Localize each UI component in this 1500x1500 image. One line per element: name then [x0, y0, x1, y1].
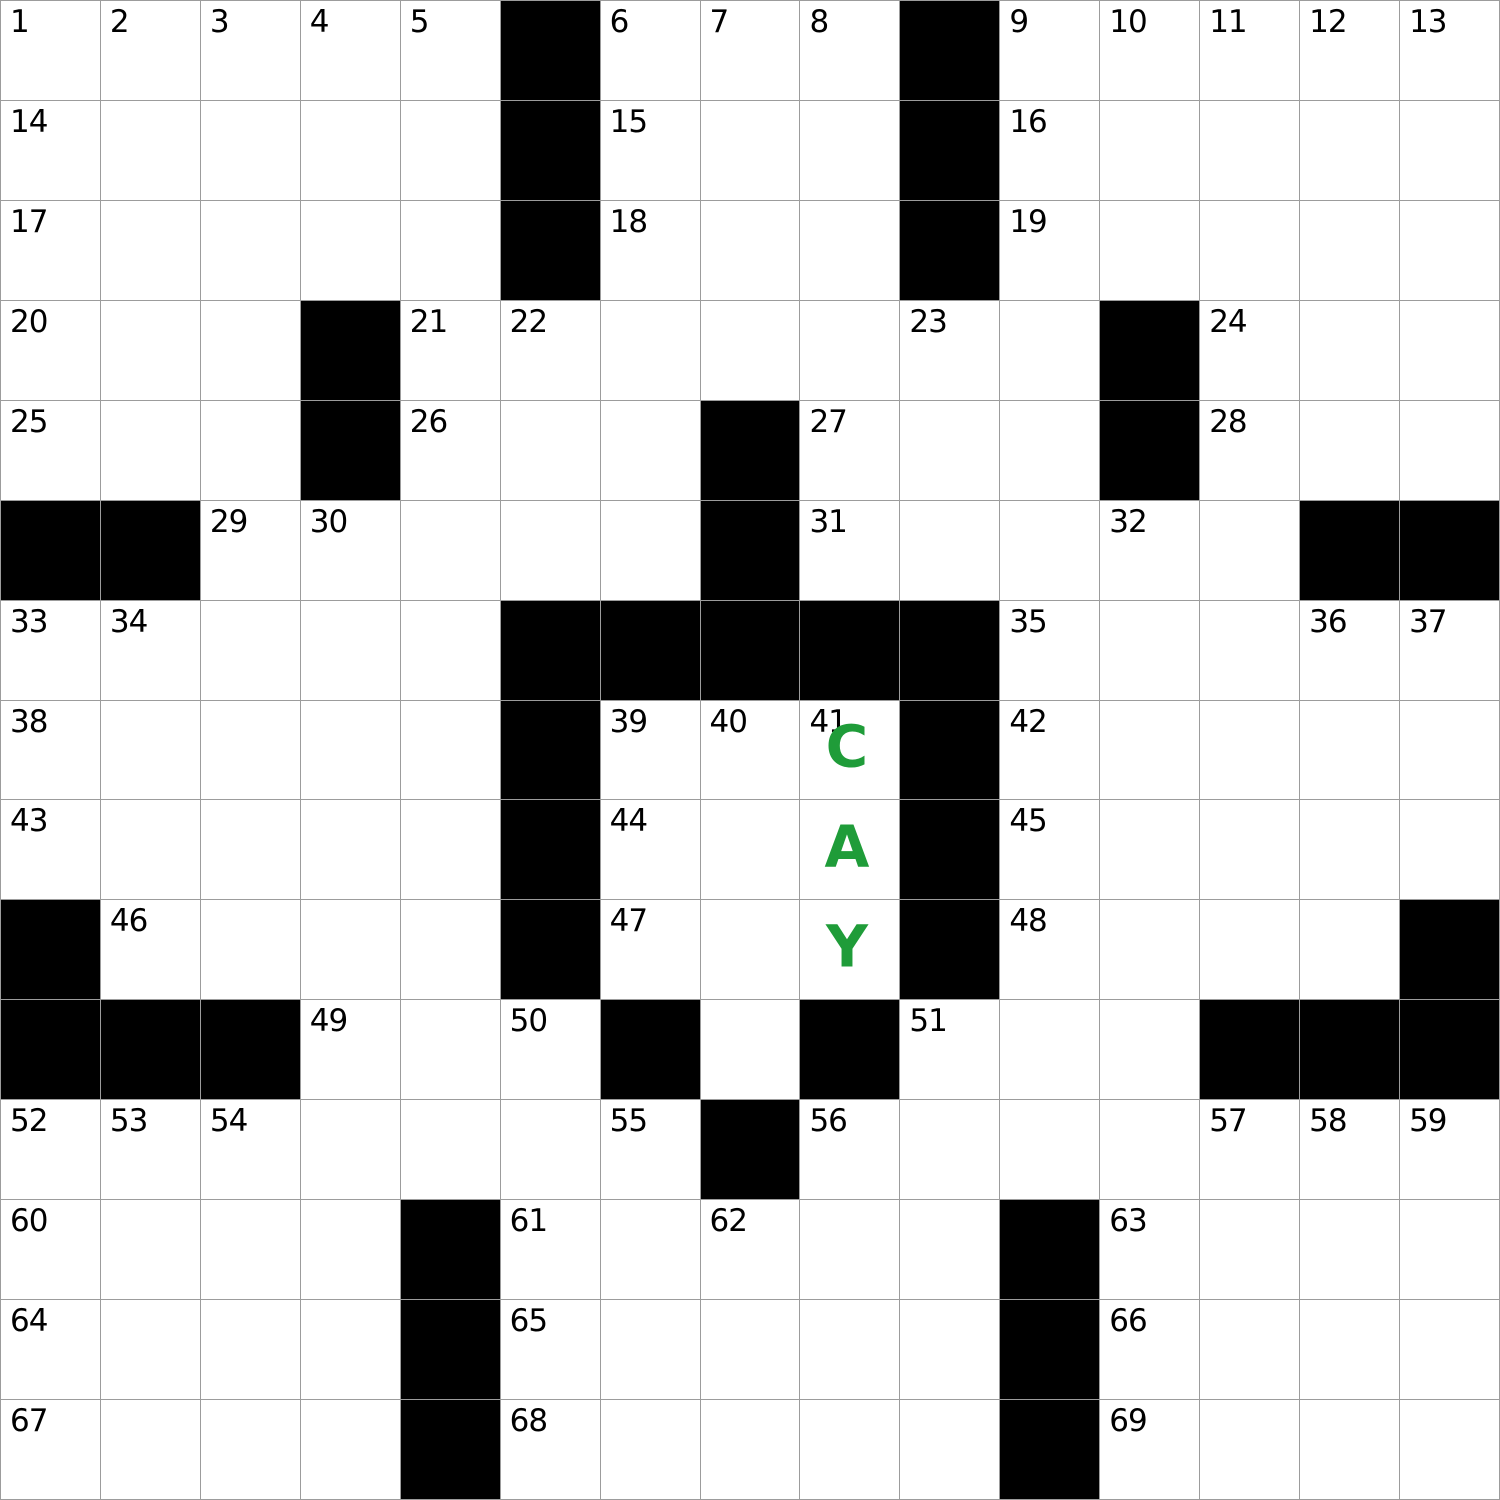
- cell-r14c0[interactable]: 67: [1, 1400, 101, 1500]
- clue-number: 32: [1109, 506, 1146, 539]
- cell-r4c1[interactable]: [101, 401, 201, 501]
- cell-r9c6[interactable]: 47: [601, 900, 701, 1000]
- cell-r8c10[interactable]: 45: [1000, 800, 1100, 900]
- cell-r11c11[interactable]: [1100, 1100, 1200, 1200]
- clue-number: 47: [610, 905, 647, 938]
- clue-number: 49: [310, 1005, 347, 1038]
- clue-number: 68: [510, 1405, 547, 1438]
- black-cell-r10c0: [1, 1000, 101, 1100]
- cell-r0c6[interactable]: 6: [601, 1, 701, 101]
- clue-number: 33: [10, 606, 47, 639]
- cell-r9c2[interactable]: [201, 900, 301, 1000]
- cell-r3c7[interactable]: [701, 301, 801, 401]
- cell-r2c1[interactable]: [101, 201, 201, 301]
- clue-number: 48: [1009, 905, 1046, 938]
- cell-r5c4[interactable]: [401, 501, 501, 601]
- cell-r2c6[interactable]: 18: [601, 201, 701, 301]
- cell-r6c4[interactable]: [401, 601, 501, 701]
- cell-r3c14[interactable]: [1400, 301, 1500, 401]
- cell-r5c11[interactable]: 32: [1100, 501, 1200, 601]
- cell-r1c0[interactable]: 14: [1, 101, 101, 201]
- clue-number: 62: [710, 1205, 747, 1238]
- cell-r13c7[interactable]: [701, 1300, 801, 1400]
- black-cell-r13c10: [1000, 1300, 1100, 1400]
- cell-r10c9[interactable]: 51: [900, 1000, 1000, 1100]
- clue-number: 34: [110, 606, 147, 639]
- black-cell-r10c6: [601, 1000, 701, 1100]
- cell-r12c7[interactable]: 62: [701, 1200, 801, 1300]
- cell-r7c2[interactable]: [201, 701, 301, 801]
- clue-number: 1: [10, 6, 29, 39]
- black-cell-r4c7: [701, 401, 801, 501]
- black-cell-r2c5: [501, 201, 601, 301]
- black-cell-r6c9: [900, 601, 1000, 701]
- cell-r10c7[interactable]: [701, 1000, 801, 1100]
- cell-r12c14[interactable]: [1400, 1200, 1500, 1300]
- cell-r12c8[interactable]: [800, 1200, 900, 1300]
- clue-number: 6: [610, 6, 629, 39]
- clue-number: 59: [1409, 1105, 1446, 1138]
- cell-r7c1[interactable]: [101, 701, 201, 801]
- black-cell-r10c1: [101, 1000, 201, 1100]
- cell-r4c0[interactable]: 25: [1, 401, 101, 501]
- black-cell-r6c6: [601, 601, 701, 701]
- cell-r7c12[interactable]: [1200, 701, 1300, 801]
- clue-number: 3: [210, 6, 229, 39]
- clue-number: 61: [510, 1205, 547, 1238]
- clue-number: 10: [1109, 6, 1146, 39]
- cell-r14c2[interactable]: [201, 1400, 301, 1500]
- clue-number: 15: [610, 106, 647, 139]
- cell-r2c8[interactable]: [800, 201, 900, 301]
- cell-r4c4[interactable]: 26: [401, 401, 501, 501]
- cell-r7c7[interactable]: 40: [701, 701, 801, 801]
- cell-r3c1[interactable]: [101, 301, 201, 401]
- cell-r10c5[interactable]: 50: [501, 1000, 601, 1100]
- cell-r13c8[interactable]: [800, 1300, 900, 1400]
- cell-r11c1[interactable]: 53: [101, 1100, 201, 1200]
- cell-r0c7[interactable]: 7: [701, 1, 801, 101]
- cell-r6c3[interactable]: [301, 601, 401, 701]
- cell-r8c1[interactable]: [101, 800, 201, 900]
- clue-number: 37: [1409, 606, 1446, 639]
- clue-number: 43: [10, 805, 47, 838]
- cell-r3c13[interactable]: [1300, 301, 1400, 401]
- cell-r8c2[interactable]: [201, 800, 301, 900]
- entry-letter: C: [826, 713, 869, 781]
- clue-number: 52: [10, 1105, 47, 1138]
- black-cell-r14c10: [1000, 1400, 1100, 1500]
- clue-number: 69: [1109, 1405, 1146, 1438]
- cell-r8c4[interactable]: [401, 800, 501, 900]
- cell-r2c3[interactable]: [301, 201, 401, 301]
- cell-r5c9[interactable]: [900, 501, 1000, 601]
- cell-r0c12[interactable]: 11: [1200, 1, 1300, 101]
- black-cell-r9c0: [1, 900, 101, 1000]
- cell-r0c13[interactable]: 12: [1300, 1, 1400, 101]
- cell-r14c5[interactable]: 68: [501, 1400, 601, 1500]
- cell-r14c13[interactable]: [1300, 1400, 1400, 1500]
- black-cell-r6c5: [501, 601, 601, 701]
- cell-r8c8[interactable]: A: [800, 800, 900, 900]
- cell-r0c0[interactable]: 1: [1, 1, 101, 101]
- black-cell-r1c9: [900, 101, 1000, 201]
- black-cell-r10c12: [1200, 1000, 1300, 1100]
- black-cell-r8c9: [900, 800, 1000, 900]
- cell-r12c5[interactable]: 61: [501, 1200, 601, 1300]
- cell-r12c12[interactable]: [1200, 1200, 1300, 1300]
- cell-r13c3[interactable]: [301, 1300, 401, 1400]
- cell-r3c5[interactable]: 22: [501, 301, 601, 401]
- cell-r14c12[interactable]: [1200, 1400, 1300, 1500]
- clue-number: 40: [710, 706, 747, 739]
- black-cell-r6c7: [701, 601, 801, 701]
- cell-r11c12[interactable]: 57: [1200, 1100, 1300, 1200]
- crossword-grid: 1234567891011121314151617181920212223242…: [0, 0, 1500, 1500]
- cell-r4c2[interactable]: [201, 401, 301, 501]
- cell-r2c14[interactable]: [1400, 201, 1500, 301]
- cell-r11c3[interactable]: [301, 1100, 401, 1200]
- cell-r7c3[interactable]: [301, 701, 401, 801]
- cell-r3c10[interactable]: [1000, 301, 1100, 401]
- cell-r13c11[interactable]: 66: [1100, 1300, 1200, 1400]
- cell-r8c11[interactable]: [1100, 800, 1200, 900]
- cell-r0c4[interactable]: 5: [401, 1, 501, 101]
- black-cell-r7c9: [900, 701, 1000, 801]
- clue-number: 4: [310, 6, 329, 39]
- cell-r10c10[interactable]: [1000, 1000, 1100, 1100]
- cell-r1c12[interactable]: [1200, 101, 1300, 201]
- cell-r13c6[interactable]: [601, 1300, 701, 1400]
- entry-letter: Y: [826, 912, 868, 980]
- cell-r6c14[interactable]: 37: [1400, 601, 1500, 701]
- cell-r2c4[interactable]: [401, 201, 501, 301]
- black-cell-r7c5: [501, 701, 601, 801]
- clue-number: 8: [809, 6, 828, 39]
- clue-number: 26: [410, 406, 447, 439]
- cell-r1c14[interactable]: [1400, 101, 1500, 201]
- cell-r1c7[interactable]: [701, 101, 801, 201]
- clue-number: 58: [1309, 1105, 1346, 1138]
- cell-r7c8[interactable]: 41C: [800, 701, 900, 801]
- cell-r13c5[interactable]: 65: [501, 1300, 601, 1400]
- clue-number: 23: [909, 306, 946, 339]
- cell-r14c6[interactable]: [601, 1400, 701, 1500]
- black-cell-r4c3: [301, 401, 401, 501]
- cell-r5c5[interactable]: [501, 501, 601, 601]
- clue-number: 16: [1009, 106, 1046, 139]
- cell-r3c12[interactable]: 24: [1200, 301, 1300, 401]
- clue-number: 14: [10, 106, 47, 139]
- clue-number: 51: [909, 1005, 946, 1038]
- cell-r1c8[interactable]: [800, 101, 900, 201]
- clue-number: 50: [510, 1005, 547, 1038]
- cell-r5c8[interactable]: 31: [800, 501, 900, 601]
- cell-r13c13[interactable]: [1300, 1300, 1400, 1400]
- cell-r10c3[interactable]: 49: [301, 1000, 401, 1100]
- cell-r6c12[interactable]: [1200, 601, 1300, 701]
- cell-r8c0[interactable]: 43: [1, 800, 101, 900]
- cell-r12c3[interactable]: [301, 1200, 401, 1300]
- cell-r3c9[interactable]: 23: [900, 301, 1000, 401]
- clue-number: 60: [10, 1205, 47, 1238]
- black-cell-r10c14: [1400, 1000, 1500, 1100]
- cell-r1c13[interactable]: [1300, 101, 1400, 201]
- black-cell-r5c13: [1300, 501, 1400, 601]
- cell-r12c13[interactable]: [1300, 1200, 1400, 1300]
- cell-r9c4[interactable]: [401, 900, 501, 1000]
- clue-number: 5: [410, 6, 429, 39]
- cell-r4c9[interactable]: [900, 401, 1000, 501]
- clue-number: 24: [1209, 306, 1246, 339]
- cell-r2c2[interactable]: [201, 201, 301, 301]
- cell-r12c11[interactable]: 63: [1100, 1200, 1200, 1300]
- clue-number: 18: [610, 206, 647, 239]
- cell-r9c13[interactable]: [1300, 900, 1400, 1000]
- cell-r6c2[interactable]: [201, 601, 301, 701]
- black-cell-r5c7: [701, 501, 801, 601]
- cell-r14c1[interactable]: [101, 1400, 201, 1500]
- clue-number: 42: [1009, 706, 1046, 739]
- cell-r8c13[interactable]: [1300, 800, 1400, 900]
- black-cell-r9c5: [501, 900, 601, 1000]
- black-cell-r10c8: [800, 1000, 900, 1100]
- black-cell-r1c5: [501, 101, 601, 201]
- cell-r9c8[interactable]: Y: [800, 900, 900, 1000]
- clue-number: 27: [809, 406, 846, 439]
- black-cell-r2c9: [900, 201, 1000, 301]
- cell-r5c12[interactable]: [1200, 501, 1300, 601]
- cell-r9c10[interactable]: 48: [1000, 900, 1100, 1000]
- entry-letter: A: [825, 813, 870, 881]
- cell-r3c4[interactable]: 21: [401, 301, 501, 401]
- cell-r4c5[interactable]: [501, 401, 601, 501]
- black-cell-r13c4: [401, 1300, 501, 1400]
- cell-r4c8[interactable]: 27: [800, 401, 900, 501]
- clue-number: 39: [610, 706, 647, 739]
- cell-r11c2[interactable]: 54: [201, 1100, 301, 1200]
- cell-r5c2[interactable]: 29: [201, 501, 301, 601]
- black-cell-r3c3: [301, 301, 401, 401]
- clue-number: 2: [110, 6, 129, 39]
- black-cell-r11c7: [701, 1100, 801, 1200]
- black-cell-r0c5: [501, 1, 601, 101]
- cell-r2c0[interactable]: 17: [1, 201, 101, 301]
- cell-r4c13[interactable]: [1300, 401, 1400, 501]
- cell-r3c2[interactable]: [201, 301, 301, 401]
- cell-r11c0[interactable]: 52: [1, 1100, 101, 1200]
- cell-r3c0[interactable]: 20: [1, 301, 101, 401]
- cell-r9c3[interactable]: [301, 900, 401, 1000]
- clue-number: 22: [510, 306, 547, 339]
- black-cell-r8c5: [501, 800, 601, 900]
- clue-number: 13: [1409, 6, 1446, 39]
- black-cell-r12c4: [401, 1200, 501, 1300]
- cell-r12c1[interactable]: [101, 1200, 201, 1300]
- black-cell-r5c14: [1400, 501, 1500, 601]
- clue-number: 67: [10, 1405, 47, 1438]
- clue-number: 12: [1309, 6, 1346, 39]
- cell-r14c8[interactable]: [800, 1400, 900, 1500]
- cell-r11c13[interactable]: 58: [1300, 1100, 1400, 1200]
- cell-r0c10[interactable]: 9: [1000, 1, 1100, 101]
- cell-r5c3[interactable]: 30: [301, 501, 401, 601]
- cell-r13c14[interactable]: [1400, 1300, 1500, 1400]
- cell-r0c3[interactable]: 4: [301, 1, 401, 101]
- crossword-page: 1234567891011121314151617181920212223242…: [0, 0, 1500, 1500]
- cell-r1c11[interactable]: [1100, 101, 1200, 201]
- cell-r6c10[interactable]: 35: [1000, 601, 1100, 701]
- cell-r8c3[interactable]: [301, 800, 401, 900]
- cell-r9c1[interactable]: 46: [101, 900, 201, 1000]
- black-cell-r3c11: [1100, 301, 1200, 401]
- cell-r7c6[interactable]: 39: [601, 701, 701, 801]
- cell-r4c10[interactable]: [1000, 401, 1100, 501]
- cell-r13c9[interactable]: [900, 1300, 1000, 1400]
- cell-r7c14[interactable]: [1400, 701, 1500, 801]
- clue-number: 53: [110, 1105, 147, 1138]
- cell-r13c12[interactable]: [1200, 1300, 1300, 1400]
- cell-r2c7[interactable]: [701, 201, 801, 301]
- black-cell-r9c14: [1400, 900, 1500, 1000]
- cell-r1c1[interactable]: [101, 101, 201, 201]
- cell-r11c10[interactable]: [1000, 1100, 1100, 1200]
- clue-number: 7: [710, 6, 729, 39]
- cell-r4c14[interactable]: [1400, 401, 1500, 501]
- black-cell-r5c1: [101, 501, 201, 601]
- cell-r14c14[interactable]: [1400, 1400, 1500, 1500]
- clue-number: 45: [1009, 805, 1046, 838]
- cell-r7c13[interactable]: [1300, 701, 1400, 801]
- cell-r2c13[interactable]: [1300, 201, 1400, 301]
- cell-r11c14[interactable]: 59: [1400, 1100, 1500, 1200]
- cell-r13c0[interactable]: 64: [1, 1300, 101, 1400]
- cell-r7c10[interactable]: 42: [1000, 701, 1100, 801]
- cell-r6c1[interactable]: 34: [101, 601, 201, 701]
- cell-r12c6[interactable]: [601, 1200, 701, 1300]
- black-cell-r4c11: [1100, 401, 1200, 501]
- cell-r9c11[interactable]: [1100, 900, 1200, 1000]
- clue-number: 9: [1009, 6, 1028, 39]
- cell-r6c11[interactable]: [1100, 601, 1200, 701]
- cell-r12c0[interactable]: 60: [1, 1200, 101, 1300]
- cell-r11c9[interactable]: [900, 1100, 1000, 1200]
- cell-r7c0[interactable]: 38: [1, 701, 101, 801]
- cell-r14c9[interactable]: [900, 1400, 1000, 1500]
- clue-number: 57: [1209, 1105, 1246, 1138]
- cell-r9c7[interactable]: [701, 900, 801, 1000]
- clue-number: 66: [1109, 1305, 1146, 1338]
- cell-r5c10[interactable]: [1000, 501, 1100, 601]
- cell-r8c6[interactable]: 44: [601, 800, 701, 900]
- cell-r2c12[interactable]: [1200, 201, 1300, 301]
- cell-r5c6[interactable]: [601, 501, 701, 601]
- clue-number: 46: [110, 905, 147, 938]
- clue-number: 29: [210, 506, 247, 539]
- cell-r3c8[interactable]: [800, 301, 900, 401]
- cell-r1c3[interactable]: [301, 101, 401, 201]
- cell-r2c11[interactable]: [1100, 201, 1200, 301]
- cell-r6c13[interactable]: 36: [1300, 601, 1400, 701]
- cell-r11c6[interactable]: 55: [601, 1100, 701, 1200]
- cell-r0c1[interactable]: 2: [101, 1, 201, 101]
- clue-number: 36: [1309, 606, 1346, 639]
- clue-number: 21: [410, 306, 447, 339]
- cell-r3c6[interactable]: [601, 301, 701, 401]
- cell-r11c5[interactable]: [501, 1100, 601, 1200]
- clue-number: 63: [1109, 1205, 1146, 1238]
- clue-number: 54: [210, 1105, 247, 1138]
- clue-number: 38: [10, 706, 47, 739]
- clue-number: 30: [310, 506, 347, 539]
- cell-r0c14[interactable]: 13: [1400, 1, 1500, 101]
- clue-number: 28: [1209, 406, 1246, 439]
- black-cell-r12c10: [1000, 1200, 1100, 1300]
- clue-number: 19: [1009, 206, 1046, 239]
- black-cell-r14c4: [401, 1400, 501, 1500]
- cell-r12c9[interactable]: [900, 1200, 1000, 1300]
- cell-r14c7[interactable]: [701, 1400, 801, 1500]
- cell-r8c12[interactable]: [1200, 800, 1300, 900]
- cell-r11c4[interactable]: [401, 1100, 501, 1200]
- cell-r12c2[interactable]: [201, 1200, 301, 1300]
- cell-r7c4[interactable]: [401, 701, 501, 801]
- cell-r4c6[interactable]: [601, 401, 701, 501]
- cell-r2c10[interactable]: 19: [1000, 201, 1100, 301]
- cell-r10c11[interactable]: [1100, 1000, 1200, 1100]
- cell-r1c6[interactable]: 15: [601, 101, 701, 201]
- cell-r0c8[interactable]: 8: [800, 1, 900, 101]
- cell-r1c2[interactable]: [201, 101, 301, 201]
- black-cell-r6c8: [800, 601, 900, 701]
- cell-r14c3[interactable]: [301, 1400, 401, 1500]
- cell-r0c11[interactable]: 10: [1100, 1, 1200, 101]
- cell-r1c4[interactable]: [401, 101, 501, 201]
- clue-number: 20: [10, 306, 47, 339]
- cell-r8c14[interactable]: [1400, 800, 1500, 900]
- black-cell-r0c9: [900, 1, 1000, 101]
- cell-r7c11[interactable]: [1100, 701, 1200, 801]
- black-cell-r10c13: [1300, 1000, 1400, 1100]
- black-cell-r5c0: [1, 501, 101, 601]
- cell-r10c4[interactable]: [401, 1000, 501, 1100]
- cell-r8c7[interactable]: [701, 800, 801, 900]
- cell-r0c2[interactable]: 3: [201, 1, 301, 101]
- cell-r11c8[interactable]: 56: [800, 1100, 900, 1200]
- clue-number: 11: [1209, 6, 1246, 39]
- clue-number: 35: [1009, 606, 1046, 639]
- clue-number: 65: [510, 1305, 547, 1338]
- black-cell-r10c2: [201, 1000, 301, 1100]
- black-cell-r9c9: [900, 900, 1000, 1000]
- clue-number: 56: [809, 1105, 846, 1138]
- cell-r13c1[interactable]: [101, 1300, 201, 1400]
- cell-r4c12[interactable]: 28: [1200, 401, 1300, 501]
- clue-number: 55: [610, 1105, 647, 1138]
- cell-r6c0[interactable]: 33: [1, 601, 101, 701]
- cell-r13c2[interactable]: [201, 1300, 301, 1400]
- clue-number: 25: [10, 406, 47, 439]
- clue-number: 44: [610, 805, 647, 838]
- cell-r1c10[interactable]: 16: [1000, 101, 1100, 201]
- clue-number: 64: [10, 1305, 47, 1338]
- cell-r14c11[interactable]: 69: [1100, 1400, 1200, 1500]
- clue-number: 31: [809, 506, 846, 539]
- cell-r9c12[interactable]: [1200, 900, 1300, 1000]
- clue-number: 17: [10, 206, 47, 239]
